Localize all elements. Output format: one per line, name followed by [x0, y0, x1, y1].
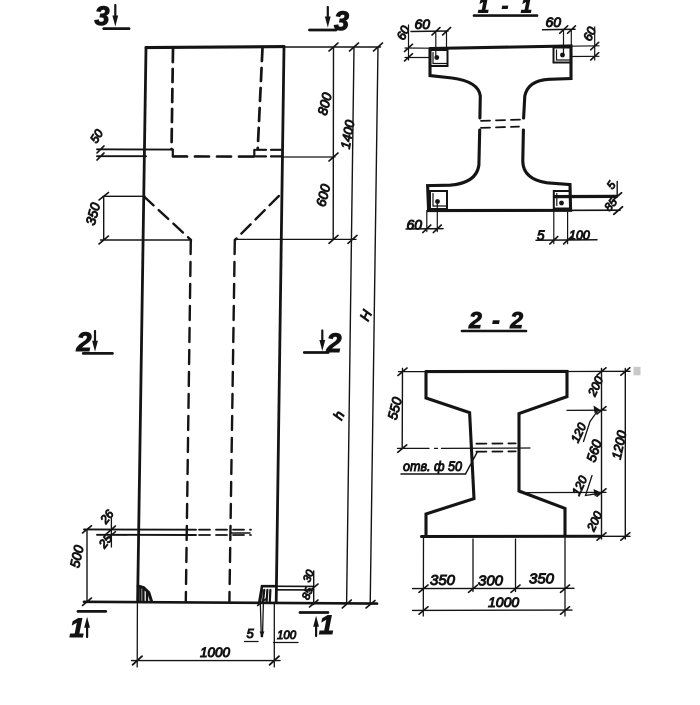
svg-text:60: 60 — [415, 16, 431, 32]
svg-text:350: 350 — [529, 571, 555, 588]
svg-text:1000: 1000 — [200, 645, 231, 660]
svg-text:отв. ф 50: отв. ф 50 — [403, 458, 462, 474]
svg-text:3: 3 — [334, 6, 349, 36]
svg-text:2 - 2: 2 - 2 — [468, 307, 523, 333]
svg-text:60: 60 — [407, 217, 423, 233]
svg-text:100: 100 — [277, 630, 297, 642]
svg-text:3: 3 — [95, 1, 110, 31]
svg-text:60: 60 — [546, 14, 562, 30]
svg-text:1: 1 — [70, 613, 85, 643]
svg-text:1: 1 — [319, 610, 334, 640]
svg-text:1000: 1000 — [488, 594, 519, 610]
svg-text:350: 350 — [430, 572, 456, 589]
svg-text:300: 300 — [478, 573, 504, 590]
svg-text:5: 5 — [247, 626, 255, 641]
